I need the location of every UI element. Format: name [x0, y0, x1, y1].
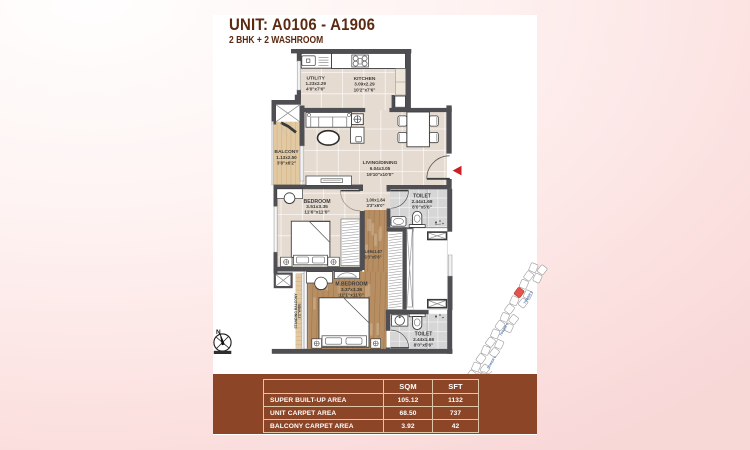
svg-text:3.37x3.35: 3.37x3.35 [341, 287, 363, 293]
svg-text:2.44x1.68: 2.44x1.68 [412, 199, 433, 204]
svg-text:3.09x2.29: 3.09x2.29 [354, 82, 375, 87]
svg-text:5'3"x5'6": 5'3"x5'6" [364, 255, 381, 260]
svg-text:TOWER 0: TOWER 0 [486, 355, 497, 370]
svg-text:1.69x1.67: 1.69x1.67 [364, 249, 383, 254]
svg-text:6.04x3.05: 6.04x3.05 [370, 166, 391, 171]
svg-text:1.13x2.50: 1.13x2.50 [276, 155, 297, 160]
svg-text:11'6"x11'0": 11'6"x11'0" [304, 209, 329, 215]
svg-text:2.44x1.68: 2.44x1.68 [413, 337, 434, 342]
svg-text:3'8"x8'2": 3'8"x8'2" [277, 161, 296, 166]
svg-text:8'0"x5'6": 8'0"x5'6" [414, 343, 434, 348]
svg-text:10'2"x7'6": 10'2"x7'6" [354, 87, 376, 92]
svg-text:8'0"x5'6": 8'0"x5'6" [412, 205, 432, 210]
svg-text:1.23x2.29: 1.23x2.29 [305, 81, 326, 86]
svg-text:4'0"x7'6": 4'0"x7'6" [306, 87, 325, 92]
svg-text:1'2"WIDE: 1'2"WIDE [298, 303, 302, 319]
svg-text:BEDROOM: BEDROOM [303, 199, 330, 205]
svg-text:M.BEDROOM: M.BEDROOM [335, 282, 367, 288]
svg-text:3'3"x6'0": 3'3"x6'0" [366, 203, 384, 208]
svg-text:N: N [216, 329, 221, 336]
svg-text:11'1"x11'0": 11'1"x11'0" [339, 293, 364, 299]
svg-text:19'10"x10'0": 19'10"x10'0" [367, 172, 394, 177]
svg-text:3.51x3.35: 3.51x3.35 [306, 204, 328, 210]
svg-text:1.00x1.84: 1.00x1.84 [366, 198, 386, 203]
